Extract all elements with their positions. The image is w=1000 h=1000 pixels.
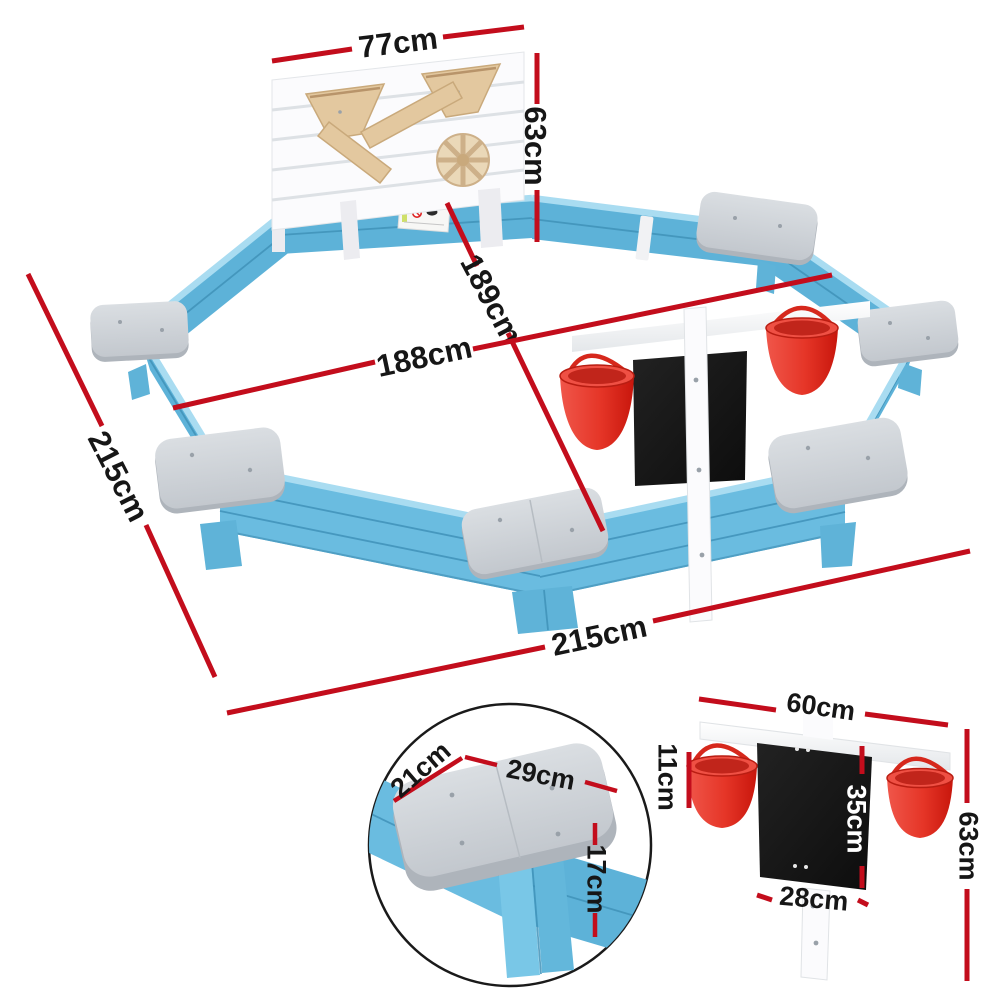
dimension-line	[699, 699, 776, 710]
board-screw	[806, 748, 810, 752]
corner-seat-left	[90, 301, 190, 363]
dimension-line	[443, 27, 524, 37]
screw-dot	[498, 518, 502, 522]
dimension-bucket-height: 11cm	[652, 743, 689, 811]
dimension-label: 11cm	[652, 743, 682, 811]
dimension-label: 77cm	[357, 20, 440, 64]
water-wheel	[437, 134, 489, 186]
screw-dot	[338, 110, 342, 114]
screw-dot	[866, 456, 870, 460]
dimension-label: 63cm	[953, 811, 983, 880]
dimension-line	[227, 647, 545, 713]
dimension-label: 63cm	[518, 106, 553, 185]
sandpit-dimension-diagram: 77cm 63cm 189cm 188cm 215cm 215cm	[0, 0, 1000, 1000]
corner-seat-right	[856, 299, 960, 368]
screw-dot	[570, 528, 574, 532]
screw-dot	[248, 468, 252, 472]
screw-dot	[694, 378, 699, 383]
red-bucket-right	[766, 308, 838, 395]
dimension-line	[173, 362, 375, 408]
board-screw	[795, 747, 799, 751]
dimension-label: 17cm	[581, 844, 611, 913]
corner-joint-left	[200, 520, 242, 570]
dimension-label: 28cm	[778, 881, 849, 917]
red-bucket-left	[560, 356, 634, 450]
corner-joint-right	[820, 522, 856, 568]
screw-dot	[190, 453, 194, 457]
screw-dot	[450, 793, 455, 798]
corner-post	[128, 364, 150, 400]
dimension-label: 35cm	[841, 784, 871, 853]
board-screw	[804, 865, 808, 869]
wheel-hub	[457, 154, 469, 166]
dimension-label: 60cm	[785, 687, 858, 726]
seat-detail-view: 21cm 29cm 17cm	[367, 704, 655, 986]
detail-bucket-left	[687, 745, 757, 828]
screw-dot	[556, 832, 561, 837]
screw-dot	[778, 224, 782, 228]
dimension-line	[28, 274, 102, 426]
corner-seat-right-front	[766, 415, 911, 516]
screw-dot	[733, 216, 737, 220]
board-screw	[793, 864, 797, 868]
corner-seat-left-front	[153, 426, 287, 516]
dimension-label: 188cm	[373, 329, 475, 383]
dimension-line	[272, 49, 352, 61]
dimension-total-height: 63cm	[953, 729, 983, 981]
screw-dot	[926, 336, 930, 340]
screw-dot	[460, 841, 465, 846]
product-diagram-stage: 77cm 63cm 189cm 188cm 215cm 215cm	[0, 0, 1000, 1000]
screw-dot	[697, 468, 702, 473]
screw-dot	[806, 446, 810, 450]
dimension-line	[757, 895, 772, 900]
dimension-rail-width: 60cm	[699, 687, 948, 726]
panel-batten	[478, 188, 503, 248]
dimension-label: 215cm	[81, 425, 156, 527]
chalkboard-detail-view: 60cm 11cm 35cm 63cm 28cm	[652, 687, 983, 981]
dimension-line	[865, 714, 948, 725]
screw-dot	[888, 321, 892, 325]
screw-dot	[118, 320, 122, 324]
detail-bucket-right	[887, 759, 953, 838]
screw-dot	[700, 553, 705, 558]
screw-dot	[814, 941, 819, 946]
dimension-line	[858, 900, 868, 905]
screw-dot	[160, 328, 164, 332]
